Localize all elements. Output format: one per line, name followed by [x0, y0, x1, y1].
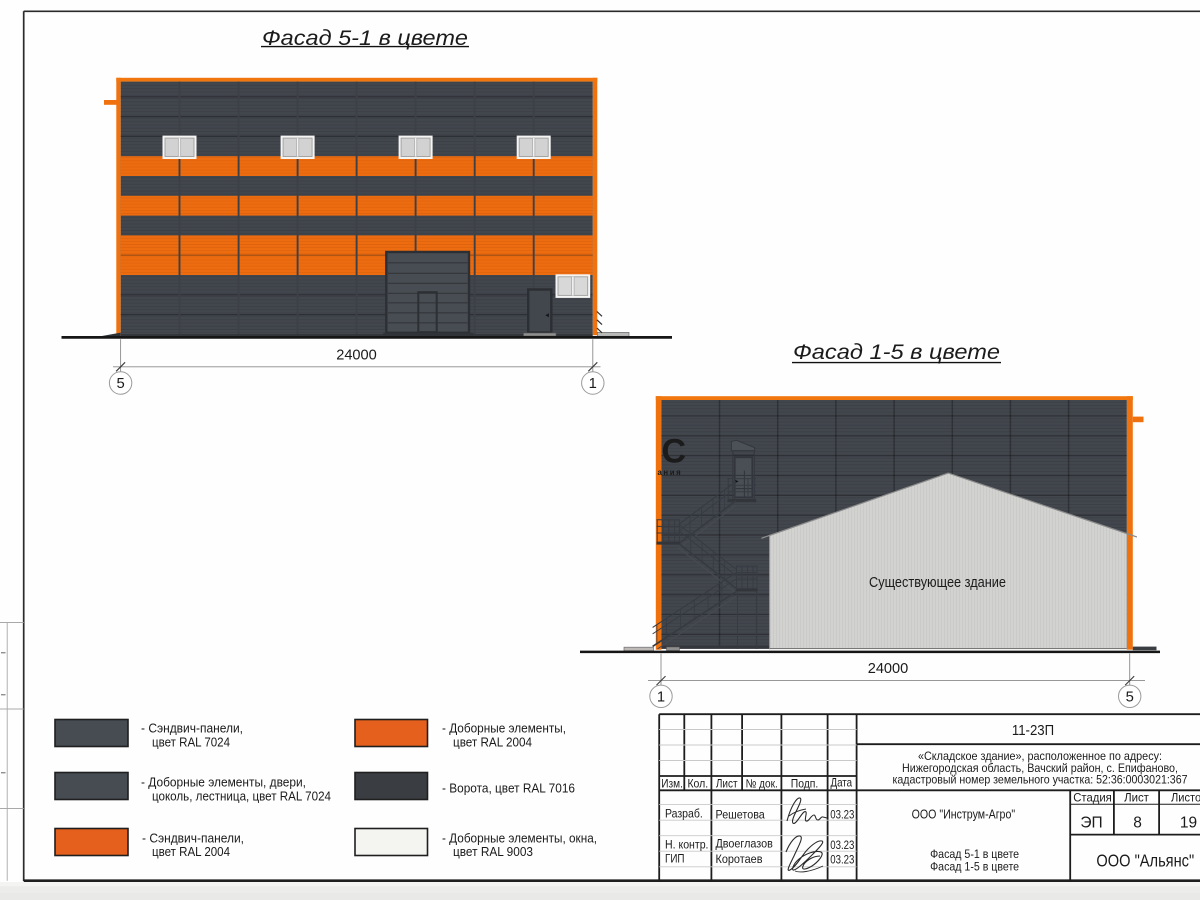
- svg-text:03.23: 03.23: [830, 838, 854, 852]
- svg-text:- Ворота, цвет RAL 7016: - Ворота, цвет RAL 7016: [442, 781, 575, 796]
- svg-text:Дата: Дата: [830, 775, 852, 789]
- svg-text:Фасад 1-5 в цвете: Фасад 1-5 в цвете: [793, 339, 1000, 364]
- svg-text:1: 1: [589, 376, 597, 392]
- svg-text:Листов: Листов: [1171, 791, 1200, 805]
- svg-text:Стадия: Стадия: [1073, 791, 1112, 805]
- svg-text:03.23: 03.23: [830, 852, 854, 866]
- svg-text:цвет RAL 9003: цвет RAL 9003: [453, 844, 533, 859]
- svg-text:цвет RAL 7024: цвет RAL 7024: [152, 734, 230, 749]
- svg-text:Решетова: Решетова: [716, 807, 765, 821]
- svg-text:цвет RAL 2004: цвет RAL 2004: [152, 844, 230, 859]
- svg-text:24000: 24000: [868, 661, 909, 677]
- svg-text:ания: ания: [658, 468, 683, 477]
- svg-text:цоколь, лестница, цвет RAL 702: цоколь, лестница, цвет RAL 7024: [152, 789, 331, 804]
- svg-text:- Доборные элементы,: - Доборные элементы,: [442, 720, 566, 735]
- svg-text:19: 19: [1180, 814, 1197, 831]
- svg-text:- Сэндвич-панели,: - Сэндвич-панели,: [141, 720, 243, 735]
- svg-text:№ док.: № док.: [746, 776, 778, 790]
- svg-text:24000: 24000: [336, 348, 377, 364]
- svg-text:Н. контр.: Н. контр.: [665, 837, 709, 851]
- svg-text:5: 5: [1126, 690, 1134, 706]
- svg-text:Фасад 1-5 в цвете: Фасад 1-5 в цвете: [930, 859, 1019, 873]
- svg-text:Разраб.: Разраб.: [665, 806, 703, 820]
- svg-text:ООО "Инструм-Агро": ООО "Инструм-Агро": [912, 807, 1016, 822]
- svg-text:5: 5: [116, 376, 124, 392]
- svg-text:Лист: Лист: [1124, 791, 1149, 805]
- svg-text:ЭП: ЭП: [1080, 814, 1102, 831]
- svg-text:Кол.: Кол.: [687, 776, 708, 790]
- svg-text:ООО "Альянс": ООО "Альянс": [1096, 851, 1194, 871]
- svg-text:8: 8: [1133, 814, 1142, 831]
- svg-text:Изм.: Изм.: [661, 776, 683, 790]
- svg-text:Коротаев: Коротаев: [716, 852, 763, 866]
- svg-text:цвет RAL 2004: цвет RAL 2004: [453, 734, 532, 749]
- svg-text:03.23: 03.23: [830, 807, 854, 821]
- svg-text:Существующее здание: Существующее здание: [869, 575, 1006, 591]
- svg-text:1: 1: [657, 690, 665, 706]
- svg-text:11-23П: 11-23П: [1012, 722, 1054, 739]
- svg-text:Подп.: Подп.: [791, 776, 819, 790]
- svg-text:Лист: Лист: [716, 776, 738, 790]
- svg-text:кадастровый номер земельного у: кадастровый номер земельного участка: 52…: [893, 773, 1188, 786]
- svg-text:ГИП: ГИП: [665, 852, 685, 866]
- svg-text:С: С: [662, 433, 687, 471]
- svg-text:Двоеглазов: Двоеглазов: [716, 836, 773, 850]
- svg-text:- Доборные элементы, двери,: - Доборные элементы, двери,: [141, 775, 306, 790]
